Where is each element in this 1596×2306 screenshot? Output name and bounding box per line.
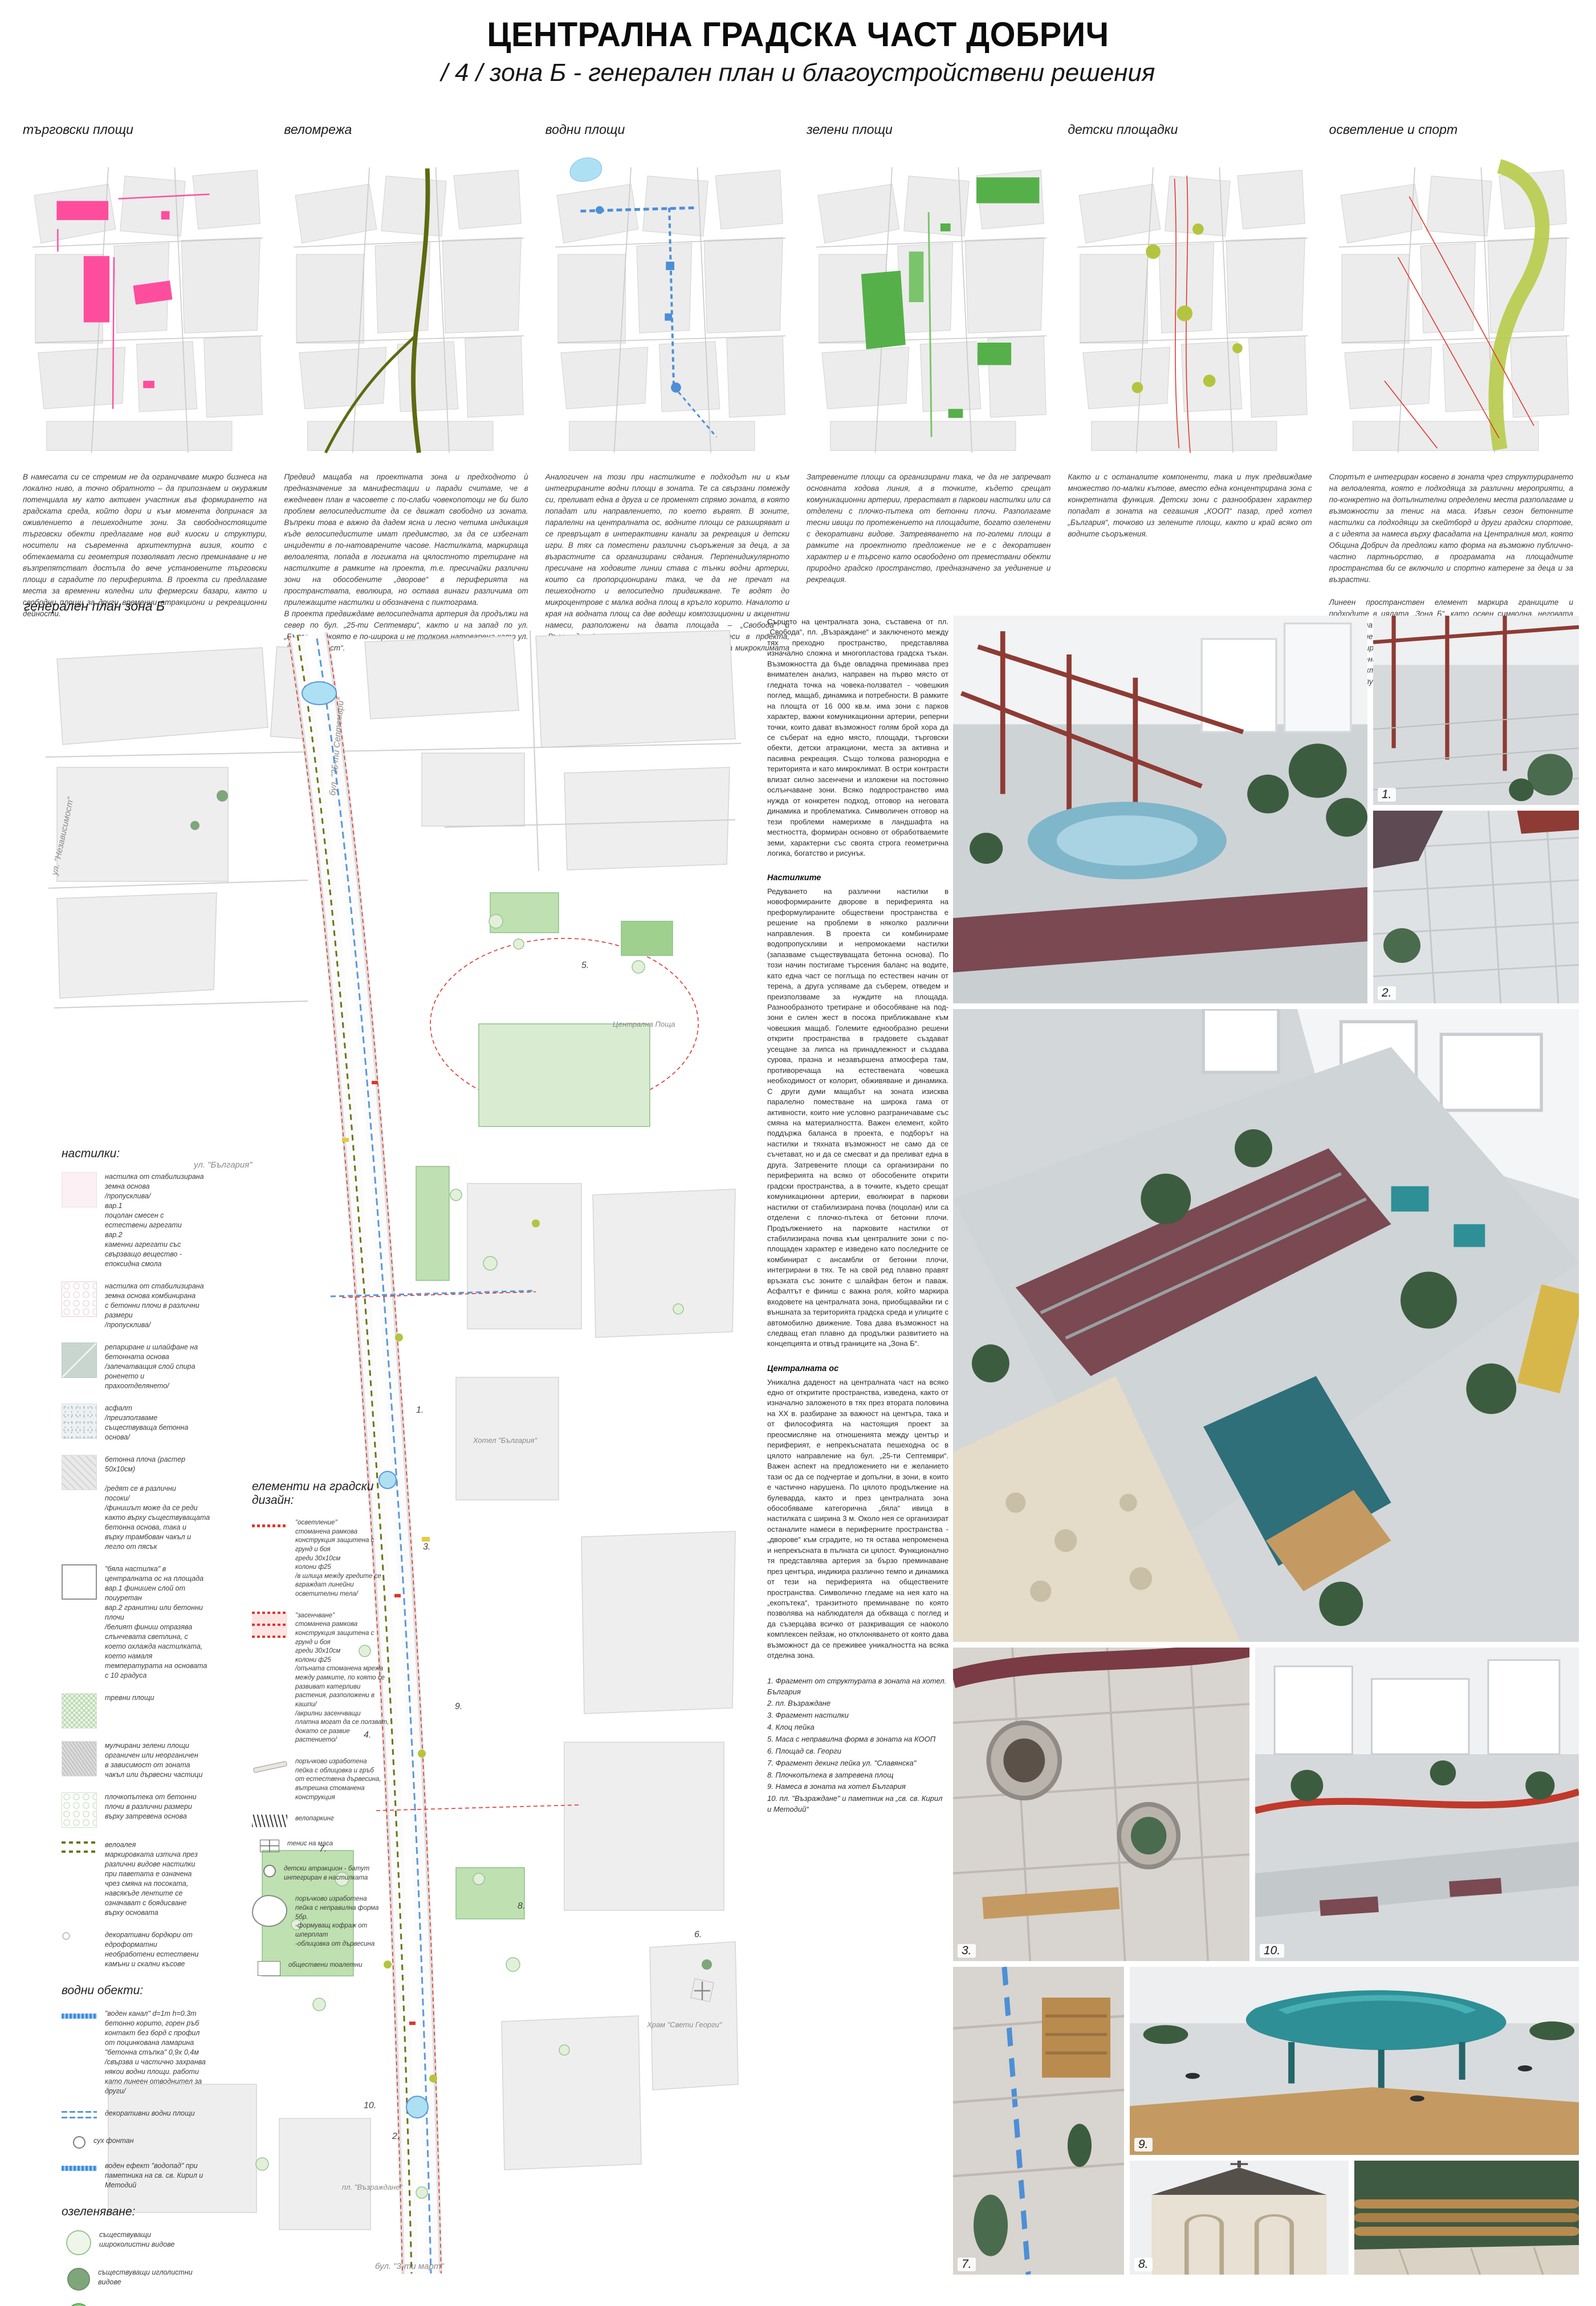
overview-card-playgrounds: детски площадки Както и с останалите ком…: [1068, 122, 1312, 688]
figure-number: 3.: [958, 1944, 976, 1958]
legend-heading: озеленяване:: [62, 2205, 236, 2219]
figure-caption: 2. пл. Възраждане: [767, 1698, 948, 1709]
swatch-stabilized-soil: [62, 1172, 97, 1207]
overview-card-bikes: веломрежа Предвид мащаба на проектната з…: [284, 122, 528, 688]
church-icon: [691, 1979, 714, 2002]
figure-caption: 1. Фрагмент от структурата в зоната на х…: [767, 1676, 948, 1698]
legend-item-text: нови широколистни дървесни видове: [98, 2303, 166, 2306]
card-label: зелени площи: [807, 122, 1051, 145]
render-structure-hotel-bulgaria: 1.: [1373, 616, 1579, 805]
plan-mark: 10.: [364, 2101, 376, 2110]
page-subtitle: / 4 / зона Б - генерален план и благоуст…: [0, 59, 1596, 87]
plan-mark: 6.: [694, 1930, 702, 1939]
swatch-bike-lane: [62, 1840, 97, 1855]
legend-item-text: поръчково изработена пейка с облицовка и…: [295, 1758, 381, 1802]
figure-caption: 3. Фрагмент настилки: [767, 1710, 948, 1721]
figure-number: 7.: [958, 2258, 976, 2271]
article-heading-axis: Централната ос: [767, 1363, 948, 1375]
map-lighting: [1329, 145, 1573, 459]
card-label: търговски площи: [23, 122, 267, 145]
swatch-stepping-slabs: [62, 1792, 97, 1828]
legend-item-text: велопаркинг: [295, 1815, 334, 1827]
render-church-square: 8.: [1130, 2161, 1349, 2275]
render-paving-fragment: 2.: [1373, 811, 1579, 1003]
legend-item-text: асфалт /преизползваме съществуваща бетон…: [105, 1404, 188, 1442]
legend-item-text: велоалея маркировката изтича през различ…: [105, 1840, 198, 1918]
card-label: детски площадки: [1068, 122, 1312, 145]
render-square-buildings: 10.: [1255, 1648, 1579, 1961]
legend-item-text: "воден канал" d=1m h=0.3m бетонно корито…: [105, 2009, 206, 2096]
map-green: [807, 145, 1051, 459]
building-label: Храм "Свети Георги": [646, 2020, 723, 2029]
legend-heading: елементи на градски дизайн:: [252, 1480, 394, 1507]
figure-number: 2.: [1378, 986, 1396, 1000]
swatch-public-toilets: [258, 1961, 280, 1976]
swatch-soil-with-slabs: [62, 1282, 97, 1317]
figure-caption: 8. Плочкопътека в затревена площ: [767, 1770, 948, 1781]
legend-heading: настилки:: [62, 1147, 236, 1161]
swatch-custom-bench: [252, 1758, 287, 1775]
article-heading-pavements: Настилките: [767, 872, 948, 884]
render-pergola-pool: [953, 616, 1367, 1003]
swatch-table-tennis: [260, 1840, 279, 1852]
card-label: осветление и спорт: [1329, 122, 1573, 145]
legend-item-text: настилка от стабилизирана земна основа к…: [105, 1282, 204, 1330]
card-text: В намесата си се стремим не да ограничва…: [23, 471, 267, 620]
legend-item-text: тенис на маса: [287, 1840, 333, 1852]
figure-number: 9.: [1134, 2138, 1153, 2152]
swatch-existing-conifer-tree: [67, 2268, 90, 2291]
plan-mark: 2.: [392, 2132, 400, 2141]
overview-card-lighting: осветление и спорт Спортът е интегриран …: [1329, 122, 1573, 688]
page-title: ЦЕНТРАЛНА ГРАДСКА ЧАСТ ДОБРИЧ: [32, 15, 1564, 54]
card-label: веломрежа: [284, 122, 528, 145]
legend-item-text: сух фонтан: [93, 2136, 134, 2149]
card-text: Както и с останалите компоненти, така и …: [1068, 471, 1312, 540]
swatch-new-deciduous-tree: [67, 2303, 90, 2306]
figure-caption: 7. Фрагмент декинг пейка ул. "Славянска": [767, 1758, 948, 1769]
legend-item-text: декоративни водни площи: [105, 2109, 195, 2124]
legend-item-text: съществуващи широколистни видове: [99, 2230, 174, 2255]
map-playgrounds: [1068, 145, 1312, 459]
legend-item-text: мулчирани зелени площи органичен или нео…: [105, 1741, 202, 1780]
overview-card-green: зелени площи Затревените площи са органи…: [807, 122, 1051, 688]
swatch-polished-concrete: [62, 1343, 97, 1378]
article-pavements-text: Редуването на различни настилки в новофо…: [767, 886, 948, 1349]
map-commerce: [23, 145, 267, 459]
plan-mark: 8.: [518, 1901, 525, 1911]
legend-item-text: "засенчване" стоманена рамкова конструкц…: [295, 1612, 389, 1745]
building-label: Хотел "България": [473, 1436, 538, 1445]
map-bikes: [284, 145, 528, 459]
building-label: Централна Поща: [613, 1020, 675, 1028]
figure-caption: 9. Намеса в зоната на хотел България: [767, 1782, 948, 1792]
legend-item-text: бетонна плоча (растер 50х10см) /редят се…: [105, 1455, 210, 1552]
swatch-existing-deciduous-tree: [66, 2230, 91, 2255]
swatch-lighting-frame: [252, 1519, 287, 1534]
legend-item-text: репариране и шлайфане на бетонната основ…: [105, 1343, 198, 1391]
swatch-waterfall-effect: [62, 2161, 97, 2176]
render-isometric-overview: [953, 1009, 1579, 1642]
figure-caption: 4. Клоц пейка: [767, 1722, 948, 1733]
legend-item-text: поръчково изработена пейка с неправилна …: [295, 1895, 378, 1949]
swatch-bike-parking: [252, 1815, 287, 1827]
plan-mark: 3.: [423, 1542, 430, 1552]
legend-item-text: съществуващи иглолистни видове: [98, 2268, 193, 2291]
legend-item-text: детски атракцион - батут интегриран в на…: [284, 1865, 369, 1882]
swatch-mulch: [62, 1741, 97, 1776]
legend-heading: водни обекти:: [62, 1984, 236, 1998]
legend-item-text: "осветление" стоманена рамкова конструкц…: [295, 1519, 381, 1599]
article-column: Сърцето на централната зона, съставена о…: [767, 617, 948, 1816]
figure-number: 8.: [1134, 2258, 1153, 2271]
legend-item-text: обществени тоалетни: [288, 1961, 362, 1976]
plan-mark: 1.: [416, 1405, 424, 1415]
plan-mark: 9.: [455, 1702, 462, 1711]
street-label: бул. "3-ти март": [375, 2262, 444, 2271]
swatch-freeform-bench: [252, 1895, 287, 1927]
legend-item-text: настилка от стабилизирана земна основа /…: [105, 1172, 204, 1269]
square-label: пл. "Възраждане": [342, 2183, 403, 2191]
figure-caption: 5. Маса с неправилна форма в зоната на К…: [767, 1734, 948, 1745]
card-text: Затревените площи са организирани така, …: [807, 471, 1051, 585]
figure-caption: 6. Площад св. Георги: [767, 1746, 948, 1757]
article-axis-text: Уникална даденост на централната част на…: [767, 1377, 948, 1661]
plan-mark: 5.: [581, 961, 589, 970]
render-decking-bench-detail: 7.: [953, 1967, 1124, 2275]
legend-item-text: декоративни бордюри от едроформатни необ…: [105, 1930, 198, 1969]
render-planters-benches: 3.: [953, 1648, 1249, 1961]
map-water: [545, 145, 789, 459]
swatch-white-pavement: [62, 1564, 97, 1600]
plan-title: генерален план зона Б: [24, 599, 165, 614]
header: ЦЕНТРАЛНА ГРАДСКА ЧАСТ ДОБРИЧ / 4 / зона…: [0, 15, 1596, 87]
poster: ЦЕНТРАЛНА ГРАДСКА ЧАСТ ДОБРИЧ / 4 / зона…: [0, 0, 1596, 2306]
article-intro: Сърцето на централната зона, съставена о…: [767, 617, 948, 859]
swatch-dry-fountain: [73, 2136, 85, 2149]
overview-strip: търговски площи В намесата си се стремим…: [23, 122, 1573, 688]
figure-number: 10.: [1260, 1944, 1284, 1958]
swatch-water-canal: [62, 2009, 97, 2024]
legend-item-text: "бяла настилка" в централната ос на площ…: [105, 1564, 207, 1681]
legend-item-text: тревни площи: [105, 1693, 154, 1729]
swatch-trampoline: [263, 1865, 276, 1877]
figure-captions: 1. Фрагмент от структурата в зоната на х…: [767, 1676, 948, 1815]
overview-card-water: водни площи Аналогичен на този при насти…: [545, 122, 789, 688]
swatch-stone-borders: [62, 1930, 97, 1942]
figure-caption: 10. пл. "Възраждане" и паметник на „св. …: [767, 1793, 948, 1815]
legend-item-text: воден ефект "водопад" при паметника на с…: [105, 2161, 203, 2190]
swatch-lawn: [62, 1693, 97, 1729]
swatch-concrete-slab: [62, 1455, 97, 1490]
legend-urban-design: елементи на градски дизайн: "осветление"…: [252, 1480, 394, 1988]
render-canopy-plaza: 9.: [1130, 1967, 1579, 2155]
legend-item-text: плочкопътека от бетонни плочи в различни…: [105, 1792, 197, 1828]
figure-number: 1.: [1378, 788, 1396, 802]
swatch-shading-frame: [252, 1612, 287, 1638]
render-wood-bench-detail: [1354, 2161, 1579, 2275]
card-label: водни площи: [545, 122, 789, 145]
swatch-decorative-water: [62, 2109, 97, 2124]
legend-pavements: настилки: настилка от стабилизирана земн…: [62, 1147, 236, 2306]
swatch-asphalt: [62, 1404, 97, 1439]
